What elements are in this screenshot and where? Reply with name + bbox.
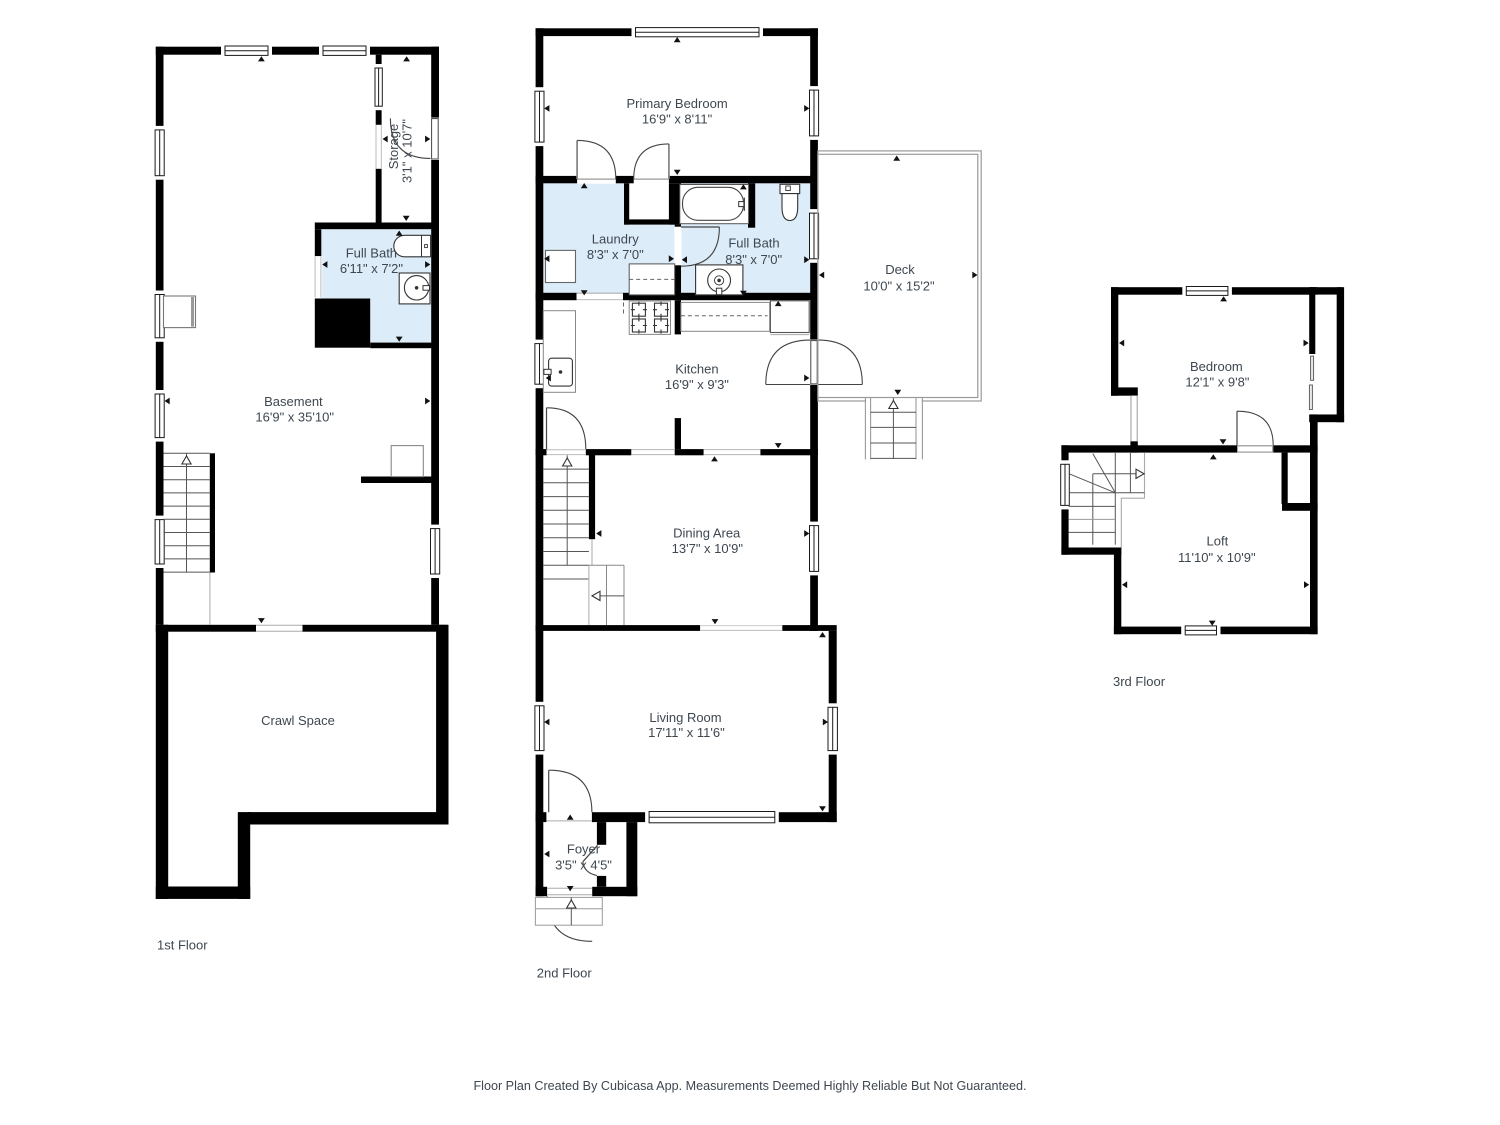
- svg-text:Dining Area: Dining Area: [673, 525, 741, 540]
- svg-text:Primary Bedroom: Primary Bedroom: [627, 96, 728, 111]
- svg-text:11'10" x 10'9": 11'10" x 10'9": [1178, 550, 1256, 565]
- svg-text:17'11" x 11'6": 17'11" x 11'6": [648, 725, 725, 740]
- svg-text:Bedroom: Bedroom: [1190, 359, 1243, 374]
- svg-text:Deck: Deck: [885, 262, 915, 277]
- svg-text:Living Room: Living Room: [649, 710, 721, 725]
- svg-text:Kitchen: Kitchen: [675, 361, 718, 376]
- svg-text:12'1" x 9'8": 12'1" x 9'8": [1185, 375, 1249, 390]
- svg-text:Foyer: Foyer: [567, 842, 601, 857]
- svg-text:3rd Floor: 3rd Floor: [1113, 674, 1166, 689]
- svg-text:Loft: Loft: [1207, 534, 1229, 549]
- svg-text:8'3" x 7'0": 8'3" x 7'0": [725, 252, 782, 267]
- svg-text:Crawl Space: Crawl Space: [261, 713, 335, 728]
- svg-text:Laundry: Laundry: [592, 231, 639, 246]
- svg-text:8'3" x 7'0": 8'3" x 7'0": [587, 247, 644, 262]
- svg-text:1st Floor: 1st Floor: [157, 938, 208, 953]
- svg-text:13'7" x 10'9": 13'7" x 10'9": [672, 541, 744, 556]
- svg-text:6'11" x 7'2": 6'11" x 7'2": [340, 261, 403, 276]
- svg-text:Full Bath: Full Bath: [728, 236, 779, 251]
- svg-text:2nd Floor: 2nd Floor: [537, 966, 593, 981]
- svg-text:16'9" x 9'3": 16'9" x 9'3": [665, 377, 729, 392]
- svg-text:16'9" x 35'10": 16'9" x 35'10": [255, 410, 334, 425]
- svg-text:Full Bath: Full Bath: [346, 246, 397, 261]
- svg-text:Basement: Basement: [264, 394, 323, 409]
- svg-text:3'1" x 10'7": 3'1" x 10'7": [400, 119, 415, 183]
- svg-text:16'9" x 8'11": 16'9" x 8'11": [642, 112, 713, 127]
- svg-text:Floor Plan Created By Cubicasa: Floor Plan Created By Cubicasa App. Meas…: [473, 1079, 1026, 1093]
- svg-text:3'5" x 4'5": 3'5" x 4'5": [555, 857, 612, 872]
- svg-text:10'0" x 15'2": 10'0" x 15'2": [863, 279, 935, 294]
